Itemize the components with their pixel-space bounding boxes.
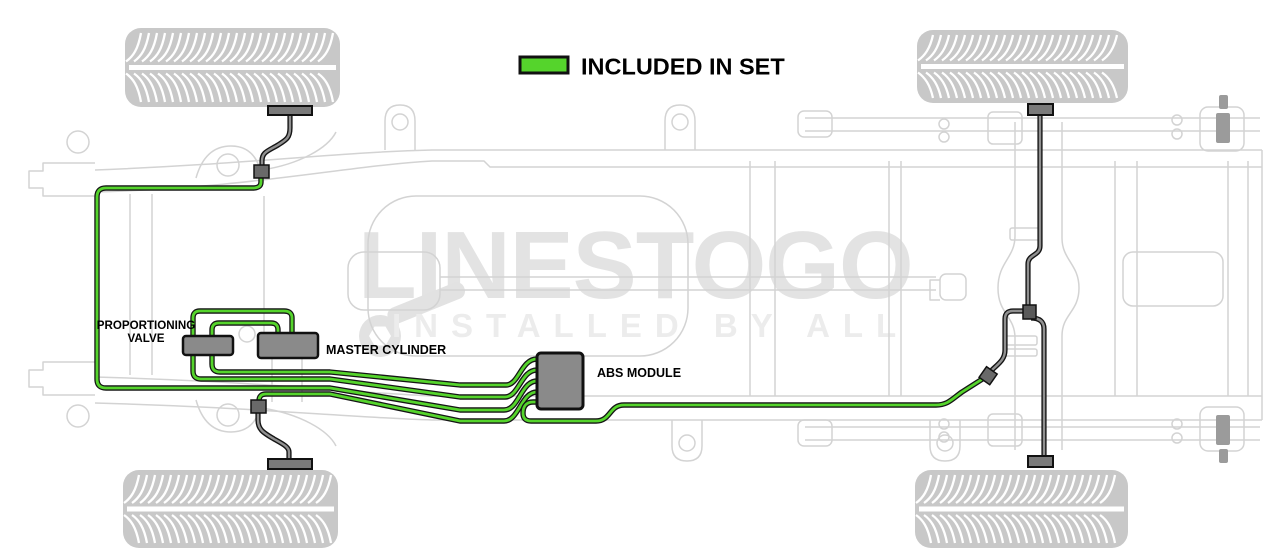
- abs-module: [537, 353, 583, 409]
- shackle-bolt: [1216, 415, 1230, 445]
- chassis-hole: [939, 119, 949, 129]
- connector-front-lower: [251, 400, 266, 413]
- chassis-hole: [239, 326, 255, 342]
- spring-perch-upper: [988, 112, 1022, 144]
- spring-hanger-lower: [798, 420, 832, 446]
- chassis-hole: [217, 154, 239, 176]
- spring-hanger-upper: [798, 111, 832, 137]
- chassis-hole: [217, 404, 239, 426]
- spring-perch-lower: [988, 414, 1022, 446]
- tread-center-stripe: [129, 65, 336, 70]
- tire-rear-lower: [915, 470, 1128, 548]
- chassis-hole: [67, 131, 89, 153]
- chassis-hole: [1172, 433, 1182, 443]
- hose-front-lower-wheel-outline: [258, 413, 289, 460]
- axle-flange-mid: [1005, 336, 1037, 345]
- chassis-hole: [1172, 115, 1182, 125]
- brake-line-abs-to-rear-outline: [523, 378, 984, 421]
- junction-rear-axle: [1023, 305, 1036, 319]
- brake-line-abs-to-rear: [523, 378, 984, 421]
- master-cylinder: [258, 333, 318, 358]
- chassis-hole: [67, 405, 89, 427]
- tire-front-upper: [125, 28, 340, 107]
- brake-line-diagram-page: LINESTOGO INSTALLED BY ALL PROPORTIONING…: [0, 0, 1280, 558]
- bracket-rear-lower-wheel: [1028, 456, 1053, 467]
- chassis-hole: [392, 114, 408, 130]
- bracket-rear-upper-wheel: [1028, 104, 1053, 115]
- abs-module-label: ABS MODULE: [597, 366, 681, 380]
- shackle-bolt: [1219, 95, 1228, 109]
- u-joint-outline: [940, 274, 966, 300]
- chassis-line: [665, 105, 695, 150]
- tire-front-lower: [123, 470, 338, 548]
- tread-center-stripe: [919, 507, 1124, 512]
- chassis-line: [29, 362, 95, 395]
- chassis-line: [385, 105, 415, 150]
- legend-swatch: [520, 57, 568, 73]
- proportioning-valve-label-line1: PROPORTIONING: [97, 319, 196, 332]
- tread-center-stripe: [127, 507, 334, 512]
- bracket-front-lower-wheel: [268, 459, 312, 469]
- watermark: LINESTOGO INSTALLED BY ALL: [358, 212, 913, 357]
- chassis-line: [95, 161, 1262, 192]
- legend: INCLUDED IN SET: [520, 54, 785, 80]
- axle-flange-mid2: [1005, 349, 1037, 356]
- tire-rear-upper: [917, 30, 1128, 103]
- chassis-hole: [672, 114, 688, 130]
- fuel-tank-outline: [1123, 252, 1223, 306]
- chassis-line: [1062, 238, 1079, 336]
- master-cylinder-label: MASTER CYLINDER: [326, 343, 446, 357]
- connector-front-upper: [254, 165, 269, 178]
- rear-axle-to-frame-hose: [986, 311, 1024, 375]
- legend-label: INCLUDED IN SET: [581, 54, 785, 80]
- proportioning-valve-label-line2: VALVE: [128, 332, 165, 345]
- chassis-hole: [939, 132, 949, 142]
- chassis-line: [29, 163, 95, 196]
- shackle-bolt: [1216, 113, 1230, 143]
- chassis-line: [672, 420, 702, 461]
- watermark-tagline-text: INSTALLED BY ALL: [392, 307, 909, 344]
- bracket-front-upper-wheel: [268, 106, 312, 115]
- tread-center-stripe: [921, 64, 1124, 69]
- chassis-underbody-diagram: LINESTOGO INSTALLED BY ALL PROPORTIONING…: [0, 0, 1280, 558]
- chassis-line: [262, 132, 336, 170]
- proportioning-valve: [183, 336, 233, 355]
- chassis-hole: [679, 435, 695, 451]
- rear-axle-line-upper-outline: [1028, 115, 1040, 307]
- shackle-bolt: [1219, 449, 1228, 463]
